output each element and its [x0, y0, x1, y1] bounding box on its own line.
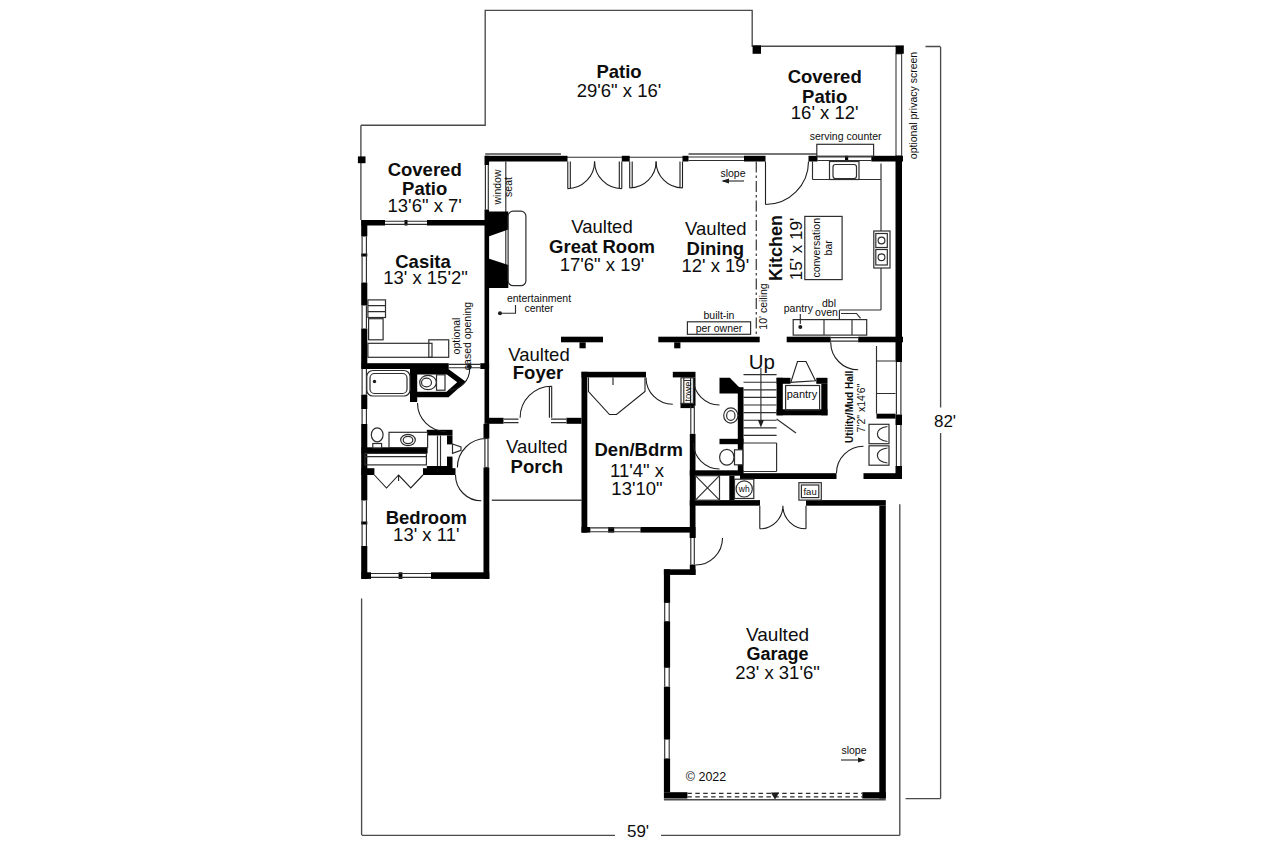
svg-text:oven: oven: [815, 306, 838, 318]
svg-text:16' x 12': 16' x 12': [791, 102, 859, 123]
svg-text:cased opening: cased opening: [461, 302, 473, 370]
svg-text:Utility/Mud Hall: Utility/Mud Hall: [844, 370, 855, 442]
svg-text:13'6" x 7': 13'6" x 7': [388, 195, 462, 216]
svg-text:Vaulted: Vaulted: [685, 218, 746, 239]
svg-text:built-in: built-in: [704, 309, 735, 321]
svg-text:center: center: [524, 302, 554, 314]
svg-text:17'6" x 19': 17'6" x 19': [560, 254, 645, 275]
svg-text:© 2022: © 2022: [686, 770, 727, 784]
svg-text:Den/Bdrm: Den/Bdrm: [594, 439, 682, 460]
svg-text:slope: slope: [841, 744, 866, 756]
svg-text:optional: optional: [450, 318, 462, 355]
svg-text:seat: seat: [502, 177, 514, 197]
svg-text:Porch: Porch: [511, 456, 563, 477]
svg-text:15' x 19': 15' x 19': [787, 218, 806, 280]
svg-text:pantry: pantry: [784, 302, 814, 314]
svg-text:Vaulted: Vaulted: [746, 624, 809, 645]
svg-text:13' x 11': 13' x 11': [393, 524, 459, 545]
svg-text:Vaulted: Vaulted: [571, 216, 632, 237]
svg-text:conversation: conversation: [810, 218, 822, 278]
svg-text:pantry: pantry: [787, 388, 818, 400]
svg-text:Patio: Patio: [596, 61, 641, 82]
svg-text:23' x 31'6": 23' x 31'6": [735, 662, 820, 683]
svg-text:Vaulted: Vaulted: [506, 436, 567, 457]
svg-text:12' x 19': 12' x 19': [681, 255, 749, 276]
svg-text:13' x 15'2": 13' x 15'2": [383, 267, 468, 288]
svg-text:59': 59': [627, 822, 649, 841]
svg-text:7'2" x14'6": 7'2" x14'6": [855, 383, 867, 432]
svg-text:towel: towel: [682, 379, 693, 401]
svg-text:29'6" x 16': 29'6" x 16': [577, 80, 662, 101]
svg-text:wh: wh: [738, 484, 750, 494]
svg-text:slope: slope: [720, 167, 745, 179]
svg-text:Kitchen: Kitchen: [766, 215, 786, 281]
svg-text:bar: bar: [822, 240, 834, 256]
svg-text:optional privacy screen: optional privacy screen: [907, 52, 919, 160]
svg-text:Garage: Garage: [746, 644, 808, 664]
svg-text:Foyer: Foyer: [513, 362, 563, 383]
svg-text:serving counter: serving counter: [810, 130, 882, 142]
svg-text:Up: Up: [749, 350, 775, 373]
svg-text:fau: fau: [803, 486, 816, 497]
svg-text:82': 82': [934, 412, 956, 431]
svg-text:13'10": 13'10": [611, 478, 662, 499]
svg-text:10' ceiling: 10' ceiling: [757, 283, 769, 330]
svg-text:Covered: Covered: [788, 66, 862, 87]
svg-text:per owner: per owner: [696, 322, 743, 334]
